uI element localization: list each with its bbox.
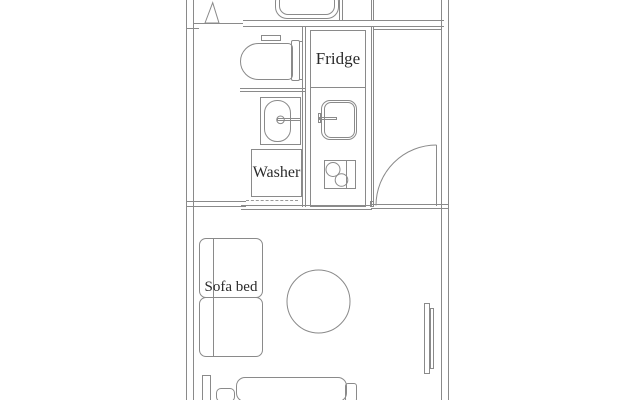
- entry-door-swing-arc: [376, 145, 437, 206]
- left-wall: [186, 0, 194, 400]
- bed-mattress: [236, 377, 347, 400]
- kitchen-faucet-bar: [319, 117, 337, 120]
- wc-bottom-wall: [240, 88, 305, 92]
- sofa-bed-seat: [199, 297, 263, 357]
- left-step-line: [186, 28, 199, 29]
- window-board-inner: [430, 308, 434, 369]
- entry-left-wall: [371, 26, 374, 207]
- sliding-opening: [246, 200, 298, 201]
- toilet-tank-back: [299, 41, 303, 80]
- fridge-label: Fridge: [310, 30, 366, 88]
- top-wall-band: [243, 20, 444, 27]
- bathtub-inner: [279, 0, 335, 15]
- bed-headboard: [202, 375, 211, 400]
- entry-top-wall: [371, 0, 374, 21]
- sofa-fold-line: [213, 239, 214, 356]
- top-wall-thin: [193, 23, 243, 24]
- sofa-bed-label: Sofa bed: [199, 279, 263, 296]
- stove-box: [324, 160, 356, 189]
- stove-divider: [346, 160, 347, 189]
- bathroom-door-triangle: [205, 3, 219, 23]
- bed-pillow: [216, 388, 235, 400]
- kitchen-sink-inner: [324, 102, 355, 138]
- entry-step-line: [374, 29, 441, 30]
- kitchen-faucet-tick: [318, 113, 321, 123]
- bed-footboard: [345, 383, 357, 400]
- toilet-bowl: [240, 43, 293, 80]
- washbasin-faucet: [277, 118, 301, 121]
- washbasin-bowl: [264, 100, 291, 142]
- mid-wall-right: [371, 204, 449, 209]
- right-wall: [441, 0, 449, 400]
- bath-right-wall: [339, 0, 343, 21]
- mid-wall-left: [186, 201, 246, 207]
- round-table: [287, 270, 350, 333]
- washer-label: Washer: [251, 149, 302, 197]
- floor-plan: Washer Fridge Sofa bed: [0, 0, 640, 400]
- entry-door-stop: [370, 201, 374, 207]
- toilet-button: [261, 35, 281, 41]
